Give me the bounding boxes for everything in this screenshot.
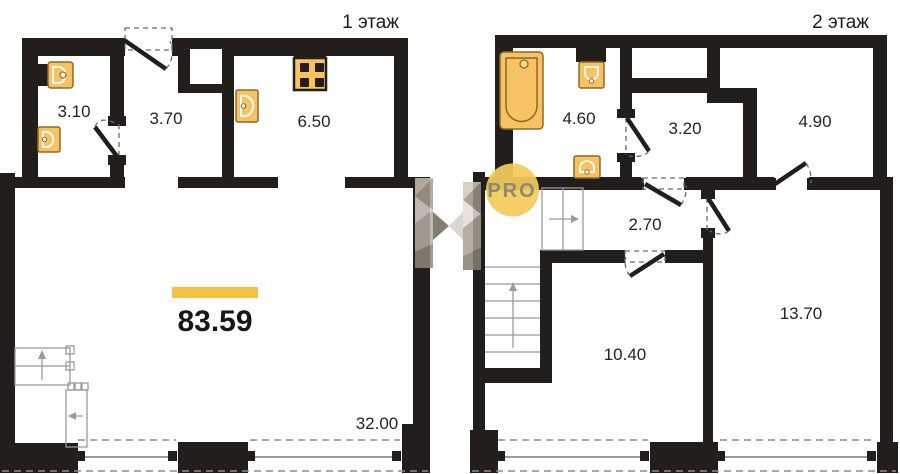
floorplan-drawing: 83.59 1 этаж 3.10 3.70 6.50 32.00 [0,0,900,474]
stove-icon [294,50,326,90]
room-area-label: 3.20 [668,119,701,138]
door-symbol-bath [626,118,649,156]
toilet-icon [38,62,73,88]
sink-icon-bath-bottom [574,156,600,178]
room-area-label: 13.70 [780,304,823,323]
sink-icon-wc1 [38,127,60,152]
sink-icon-bath-top [576,48,606,88]
room-area-label: 2.70 [628,215,661,234]
floor1-title: 1 этаж [342,12,399,33]
room-area-label: 3.10 [57,102,90,121]
total-area-label: 83.59 [177,305,252,338]
total-area-highlight-bar [172,287,258,298]
floorplan-page: 83.59 1 этаж 3.10 3.70 6.50 32.00 [0,0,900,474]
room-area-label: 3.70 [149,109,182,128]
room-area-label: 10.40 [604,345,647,364]
floor1-plan: 83.59 1 этаж 3.10 3.70 6.50 32.00 [0,12,430,473]
bathtub-icon [500,52,543,129]
floor2-title: 2 этаж [812,12,869,33]
h-letter-watermark [415,178,481,270]
floor2-plan: 2 этаж 4.60 3.20 4.90 2.70 10.40 13.70 [470,12,898,473]
room-area-label: 6.50 [297,112,330,131]
room-area-label: 32.00 [356,414,399,433]
floor1-stairs [15,346,88,447]
pro-badge-watermark: PRO [486,164,539,217]
room-area-label: 4.90 [798,112,831,131]
sink-icon-kitchen [236,90,258,122]
room-area-label: 4.60 [562,109,595,128]
pro-badge-label: PRO [487,180,536,202]
